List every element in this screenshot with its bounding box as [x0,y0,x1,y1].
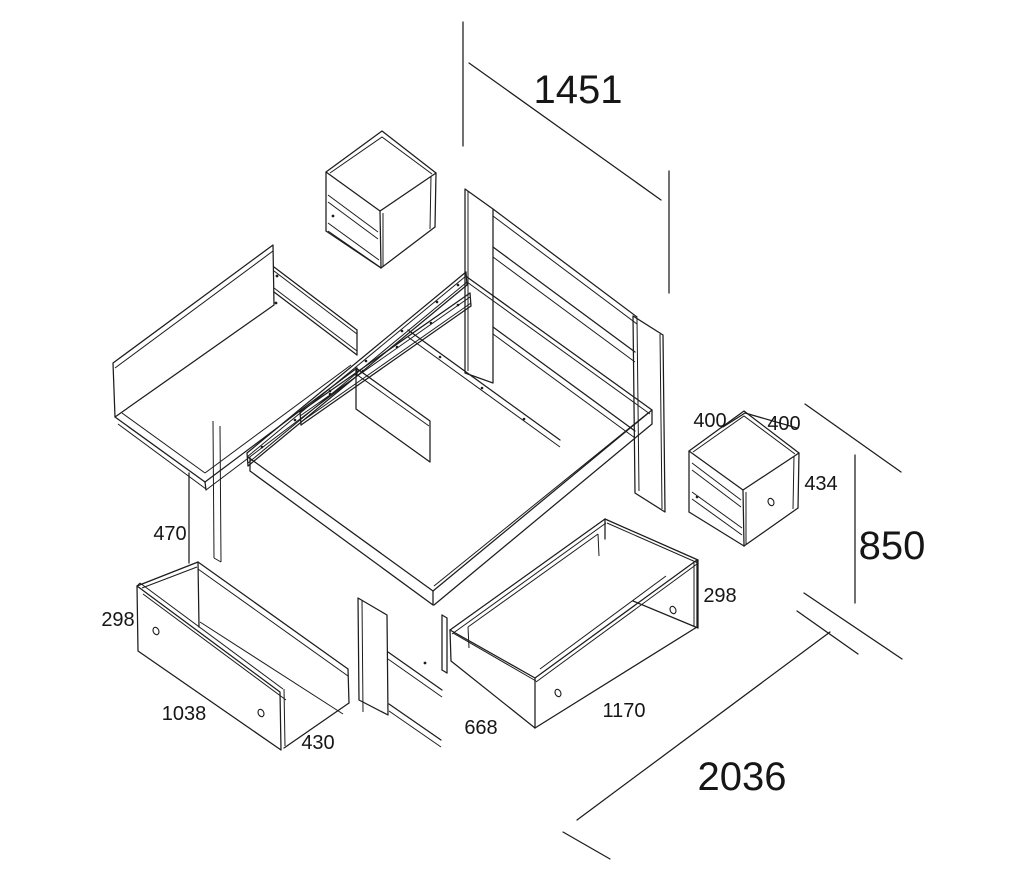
bed-right-side-panel [633,316,665,512]
bed-shelf-unit [358,598,447,747]
dimension-2036: 2036 [563,611,858,859]
dim-label-rd-width: 668 [464,717,497,739]
diagram-canvas: 1451 850 2036 470 400 400 434 298 1038 4… [0,0,1024,879]
dim-label-ns-height: 434 [804,473,837,495]
bed-platform [248,277,652,605]
dimension-850: 850 [804,404,925,659]
dim-label-ld-height: 298 [101,609,134,631]
dim-label-ns-depth: 400 [767,413,800,435]
dim-label-ld-length: 1038 [162,703,207,725]
exploded-bed-diagram: 1451 850 2036 470 400 400 434 298 1038 4… [0,0,1024,879]
dim-label-1451: 1451 [534,68,623,112]
dimension-drawer-right: 668 1170 298 [464,585,736,739]
dimension-1451: 1451 [463,22,669,293]
dim-label-rd-height: 298 [703,585,736,607]
dimension-drawer-left: 298 1038 430 [101,609,334,754]
dim-label-ns-width: 400 [693,410,726,432]
dimension-nightstand: 400 400 434 [693,410,837,495]
dim-label-ld-depth: 430 [301,732,334,754]
dimension-470: 470 [153,473,189,563]
bed-center-rail [300,293,471,425]
dim-label-rd-length: 1170 [602,700,645,722]
dim-label-850: 850 [859,524,926,568]
bed-headboard [465,189,637,438]
drawer-right [450,519,698,728]
dim-label-2036: 2036 [698,755,787,799]
nightstand-left [326,131,436,268]
dim-label-470: 470 [153,523,186,545]
bed-head-cross-rail [408,330,560,447]
